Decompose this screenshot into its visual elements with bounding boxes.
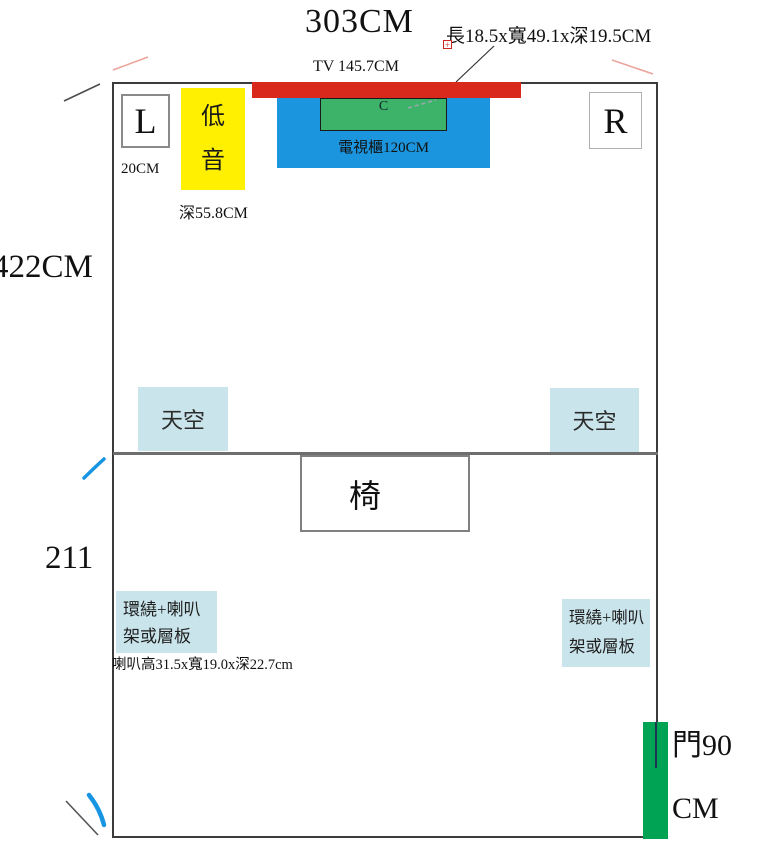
tv-size-label: TV 145.7CM xyxy=(313,58,399,76)
left-speaker-offset-label: 20CM xyxy=(121,161,159,178)
ceiling-speaker-right-label: 天空 xyxy=(572,404,616,436)
ceiling-speaker-left: 天空 xyxy=(138,387,228,451)
corner-mark-top-left-gray xyxy=(64,84,100,101)
tv-cabinet-label: 電視櫃120CM xyxy=(277,136,490,157)
ceiling-speaker-right: 天空 xyxy=(550,388,639,452)
right-speaker-box: R xyxy=(589,92,642,149)
surround-left-line2: 架或層板 xyxy=(123,623,210,650)
corner-mark-bottom-left-gray xyxy=(66,801,98,835)
tv-bar xyxy=(252,82,521,98)
surround-speaker-right: 環繞+喇叭 架或層板 xyxy=(562,599,650,667)
room-width-label: 303CM xyxy=(305,3,414,41)
upper-room-depth-label: 422CM xyxy=(0,249,93,286)
subwoofer-depth-label: 深55.8CM xyxy=(179,199,248,223)
annotation-anchor-icon: + xyxy=(443,40,452,49)
left-speaker-box: L xyxy=(121,94,170,148)
floor-plan-diagram: 303CM 長18.5x寬49.1x深19.5CM + TV 145.7CM C… xyxy=(0,0,760,858)
left-speaker-label: L xyxy=(135,100,157,142)
right-speaker-label: R xyxy=(603,100,627,142)
lower-room-depth-label: 211 xyxy=(45,540,93,577)
surround-right-line2: 架或層板 xyxy=(569,633,643,662)
corner-mark-top-left-pink xyxy=(113,57,148,70)
door-width-label-line2: CM xyxy=(672,792,719,826)
annotation-leader-line xyxy=(456,46,494,82)
mid-left-blue-stroke xyxy=(84,459,104,478)
center-speaker-dims-label: 長18.5x寬49.1x深19.5CM xyxy=(446,21,651,48)
corner-mark-bottom-left-blue xyxy=(89,795,104,825)
corner-mark-top-right-pink xyxy=(612,60,653,74)
chair-label: 椅 xyxy=(349,471,381,517)
door-width-label-line1: 門90 xyxy=(672,720,732,764)
surround-size-note: 喇叭高31.5x寬19.0x深22.7cm xyxy=(112,653,293,674)
center-speaker-label: C xyxy=(379,99,388,115)
surround-right-line1: 環繞+喇叭 xyxy=(569,604,643,633)
surround-speaker-left: 環繞+喇叭 架或層板 xyxy=(116,591,217,653)
surround-left-line1: 環繞+喇叭 xyxy=(123,596,210,623)
wall-segment-over-door xyxy=(655,722,657,768)
subwoofer-box: 低音 xyxy=(181,88,245,190)
subwoofer-label: 低音 xyxy=(200,95,225,184)
center-speaker-box: C xyxy=(320,98,447,131)
chair-box: 椅 xyxy=(300,455,470,532)
ceiling-speaker-left-label: 天空 xyxy=(161,403,205,435)
